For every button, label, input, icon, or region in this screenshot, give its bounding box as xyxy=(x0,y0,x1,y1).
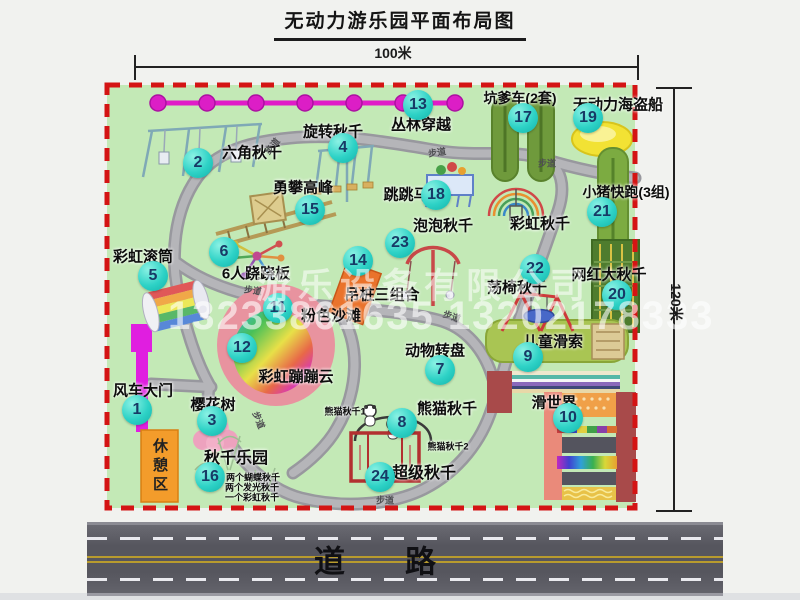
attraction-badge-14: 14 xyxy=(343,246,373,276)
attraction-label-8: 熊猫秋千 xyxy=(417,398,477,419)
attraction-badge-13: 13 xyxy=(403,90,433,120)
rest-area-label: 休憩区 xyxy=(149,438,170,495)
attraction-label-15: 勇攀高峰 xyxy=(273,177,333,198)
walkway-label-2: 步道 xyxy=(538,157,556,170)
attraction-badge-1: 1 xyxy=(122,395,152,425)
attraction-badge-7: 7 xyxy=(425,355,455,385)
walkway-label-3: 步道 xyxy=(243,282,263,297)
walkway-label-4: 步道 xyxy=(441,307,462,325)
attraction-label-24: 超级秋千 xyxy=(392,459,456,483)
walkway-label-5: 步道 xyxy=(250,409,269,431)
attraction-label-12: 彩虹蹦蹦云 xyxy=(258,366,333,387)
width-dimension-label: 100米 xyxy=(374,43,411,63)
attraction-badge-5: 5 xyxy=(138,261,168,291)
attraction-label-11: 粉色沙滩 xyxy=(301,305,361,326)
sub-label-2: 熊猫秋千2 xyxy=(427,440,468,453)
sub-label-5: 一个彩虹秋千 xyxy=(225,491,279,504)
attraction-badge-24: 24 xyxy=(365,462,395,492)
attraction-badge-23: 23 xyxy=(385,228,415,258)
attraction-badge-6: 6 xyxy=(209,237,239,267)
attraction-badge-15: 15 xyxy=(295,195,325,225)
attraction-label-6: 6人跷跷板 xyxy=(222,263,290,284)
attraction-badge-22: 22 xyxy=(520,254,550,284)
park-plan-image: 无动力游乐园平面布局图 100米 120米 休憩区 风车大门1六角秋千2樱花树3… xyxy=(0,0,800,600)
attraction-badge-17: 17 xyxy=(508,103,538,133)
attraction-label-23: 泡泡秋千 xyxy=(413,215,473,236)
page-title: 无动力游乐园平面布局图 xyxy=(0,6,800,41)
attraction-badge-12: 12 xyxy=(227,333,257,363)
title-text: 无动力游乐园平面布局图 xyxy=(274,6,525,41)
walkway-label-1: 步道 xyxy=(427,144,447,159)
attraction-badge-21: 21 xyxy=(587,197,617,227)
attraction-badge-3: 3 xyxy=(197,406,227,436)
attraction-badge-16: 16 xyxy=(195,462,225,492)
attraction-badge-4: 4 xyxy=(328,133,358,163)
attraction-badge-9: 9 xyxy=(513,342,543,372)
attraction-badge-10: 10 xyxy=(553,403,583,433)
attraction-badge-8: 8 xyxy=(387,408,417,438)
walkway-label-6: 步道 xyxy=(376,494,394,507)
attraction-label-14: 吊桩三组合 xyxy=(344,284,419,305)
sub-label-0: 彩虹秋千 xyxy=(510,213,570,234)
attraction-badge-11: 11 xyxy=(263,293,293,323)
height-dimension-label: 120米 xyxy=(666,283,686,320)
sub-label-1: 熊猫秋千1 xyxy=(324,405,365,418)
attraction-badge-19: 19 xyxy=(573,103,603,133)
attraction-badge-18: 18 xyxy=(421,180,451,210)
attraction-badge-20: 20 xyxy=(602,280,632,310)
attraction-badge-2: 2 xyxy=(183,148,213,178)
